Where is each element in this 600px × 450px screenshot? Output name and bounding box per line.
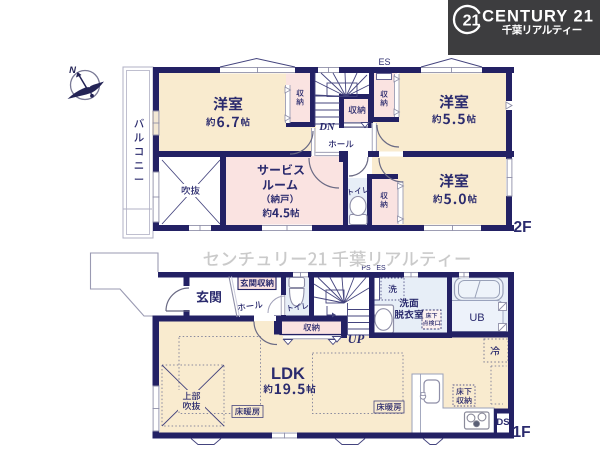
svg-text:ES: ES xyxy=(376,265,386,272)
svg-text:2F: 2F xyxy=(513,219,531,236)
svg-text:21: 21 xyxy=(463,13,481,30)
svg-text:DS: DS xyxy=(496,417,509,428)
svg-text:LDK: LDK xyxy=(271,365,305,383)
svg-text:ES: ES xyxy=(378,57,390,67)
svg-text:CENTURY 21: CENTURY 21 xyxy=(482,7,594,25)
svg-text:PS: PS xyxy=(361,265,371,272)
svg-text:N: N xyxy=(69,65,77,76)
svg-text:1F: 1F xyxy=(512,424,530,441)
svg-text:UB: UB xyxy=(469,312,484,324)
svg-text:UP: UP xyxy=(348,332,365,346)
svg-text:DN: DN xyxy=(318,122,335,133)
